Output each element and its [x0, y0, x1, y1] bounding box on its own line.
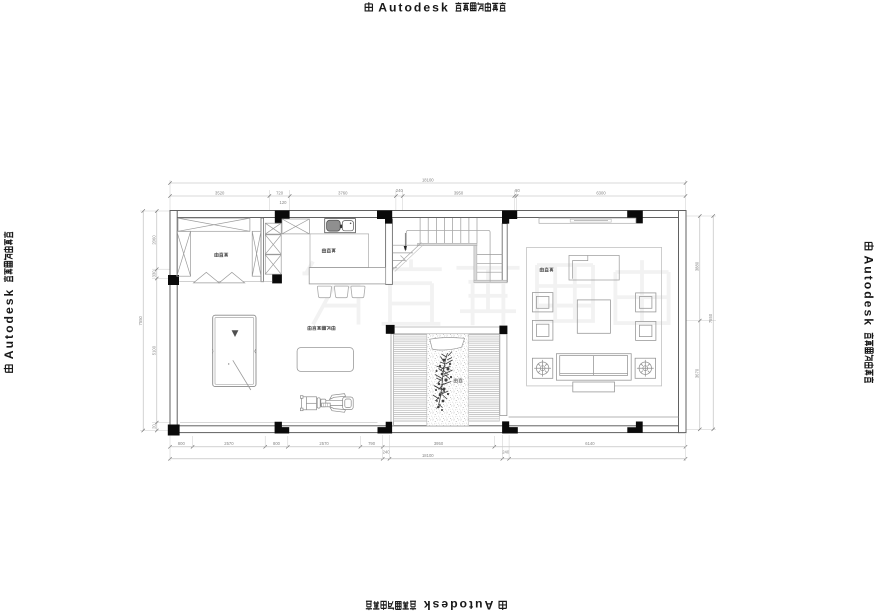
- svg-text:2570: 2570: [319, 441, 329, 446]
- svg-text:2060: 2060: [151, 235, 156, 245]
- svg-text:80: 80: [515, 188, 520, 193]
- svg-text:7550: 7550: [708, 313, 713, 323]
- svg-text:3760: 3760: [338, 190, 348, 195]
- svg-text:330: 330: [151, 270, 156, 278]
- svg-text:6140: 6140: [585, 441, 595, 446]
- svg-text:18100: 18100: [422, 177, 434, 182]
- svg-text:240: 240: [383, 449, 391, 454]
- svg-text:6300: 6300: [596, 190, 606, 195]
- svg-text:3950: 3950: [434, 441, 444, 446]
- svg-text:800: 800: [273, 441, 281, 446]
- svg-text:120: 120: [280, 200, 288, 205]
- svg-text:240: 240: [502, 449, 510, 454]
- svg-text:7550: 7550: [138, 315, 143, 325]
- svg-text:3670: 3670: [694, 368, 699, 378]
- svg-text:720: 720: [276, 190, 284, 195]
- svg-text:240: 240: [396, 188, 404, 193]
- svg-text:18100: 18100: [422, 453, 434, 458]
- svg-text:800: 800: [178, 441, 186, 446]
- svg-text:5100: 5100: [151, 345, 156, 355]
- svg-text:2570: 2570: [224, 441, 234, 446]
- svg-text:790: 790: [368, 441, 376, 446]
- svg-text:3880: 3880: [694, 261, 699, 271]
- svg-text:3950: 3950: [454, 190, 464, 195]
- svg-text:3520: 3520: [215, 190, 225, 195]
- svg-text:20: 20: [151, 424, 156, 429]
